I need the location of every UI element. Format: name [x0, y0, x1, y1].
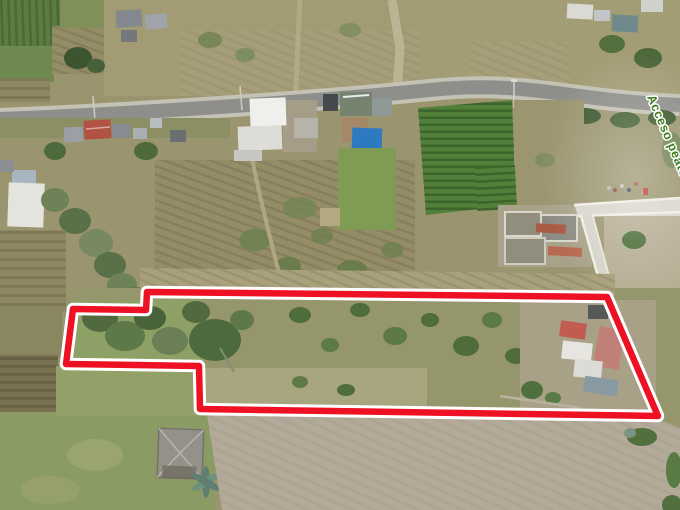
thatched-hut [157, 428, 204, 480]
dirt-field [206, 408, 680, 510]
aerial-photo: Acceso peatonal [0, 0, 680, 510]
